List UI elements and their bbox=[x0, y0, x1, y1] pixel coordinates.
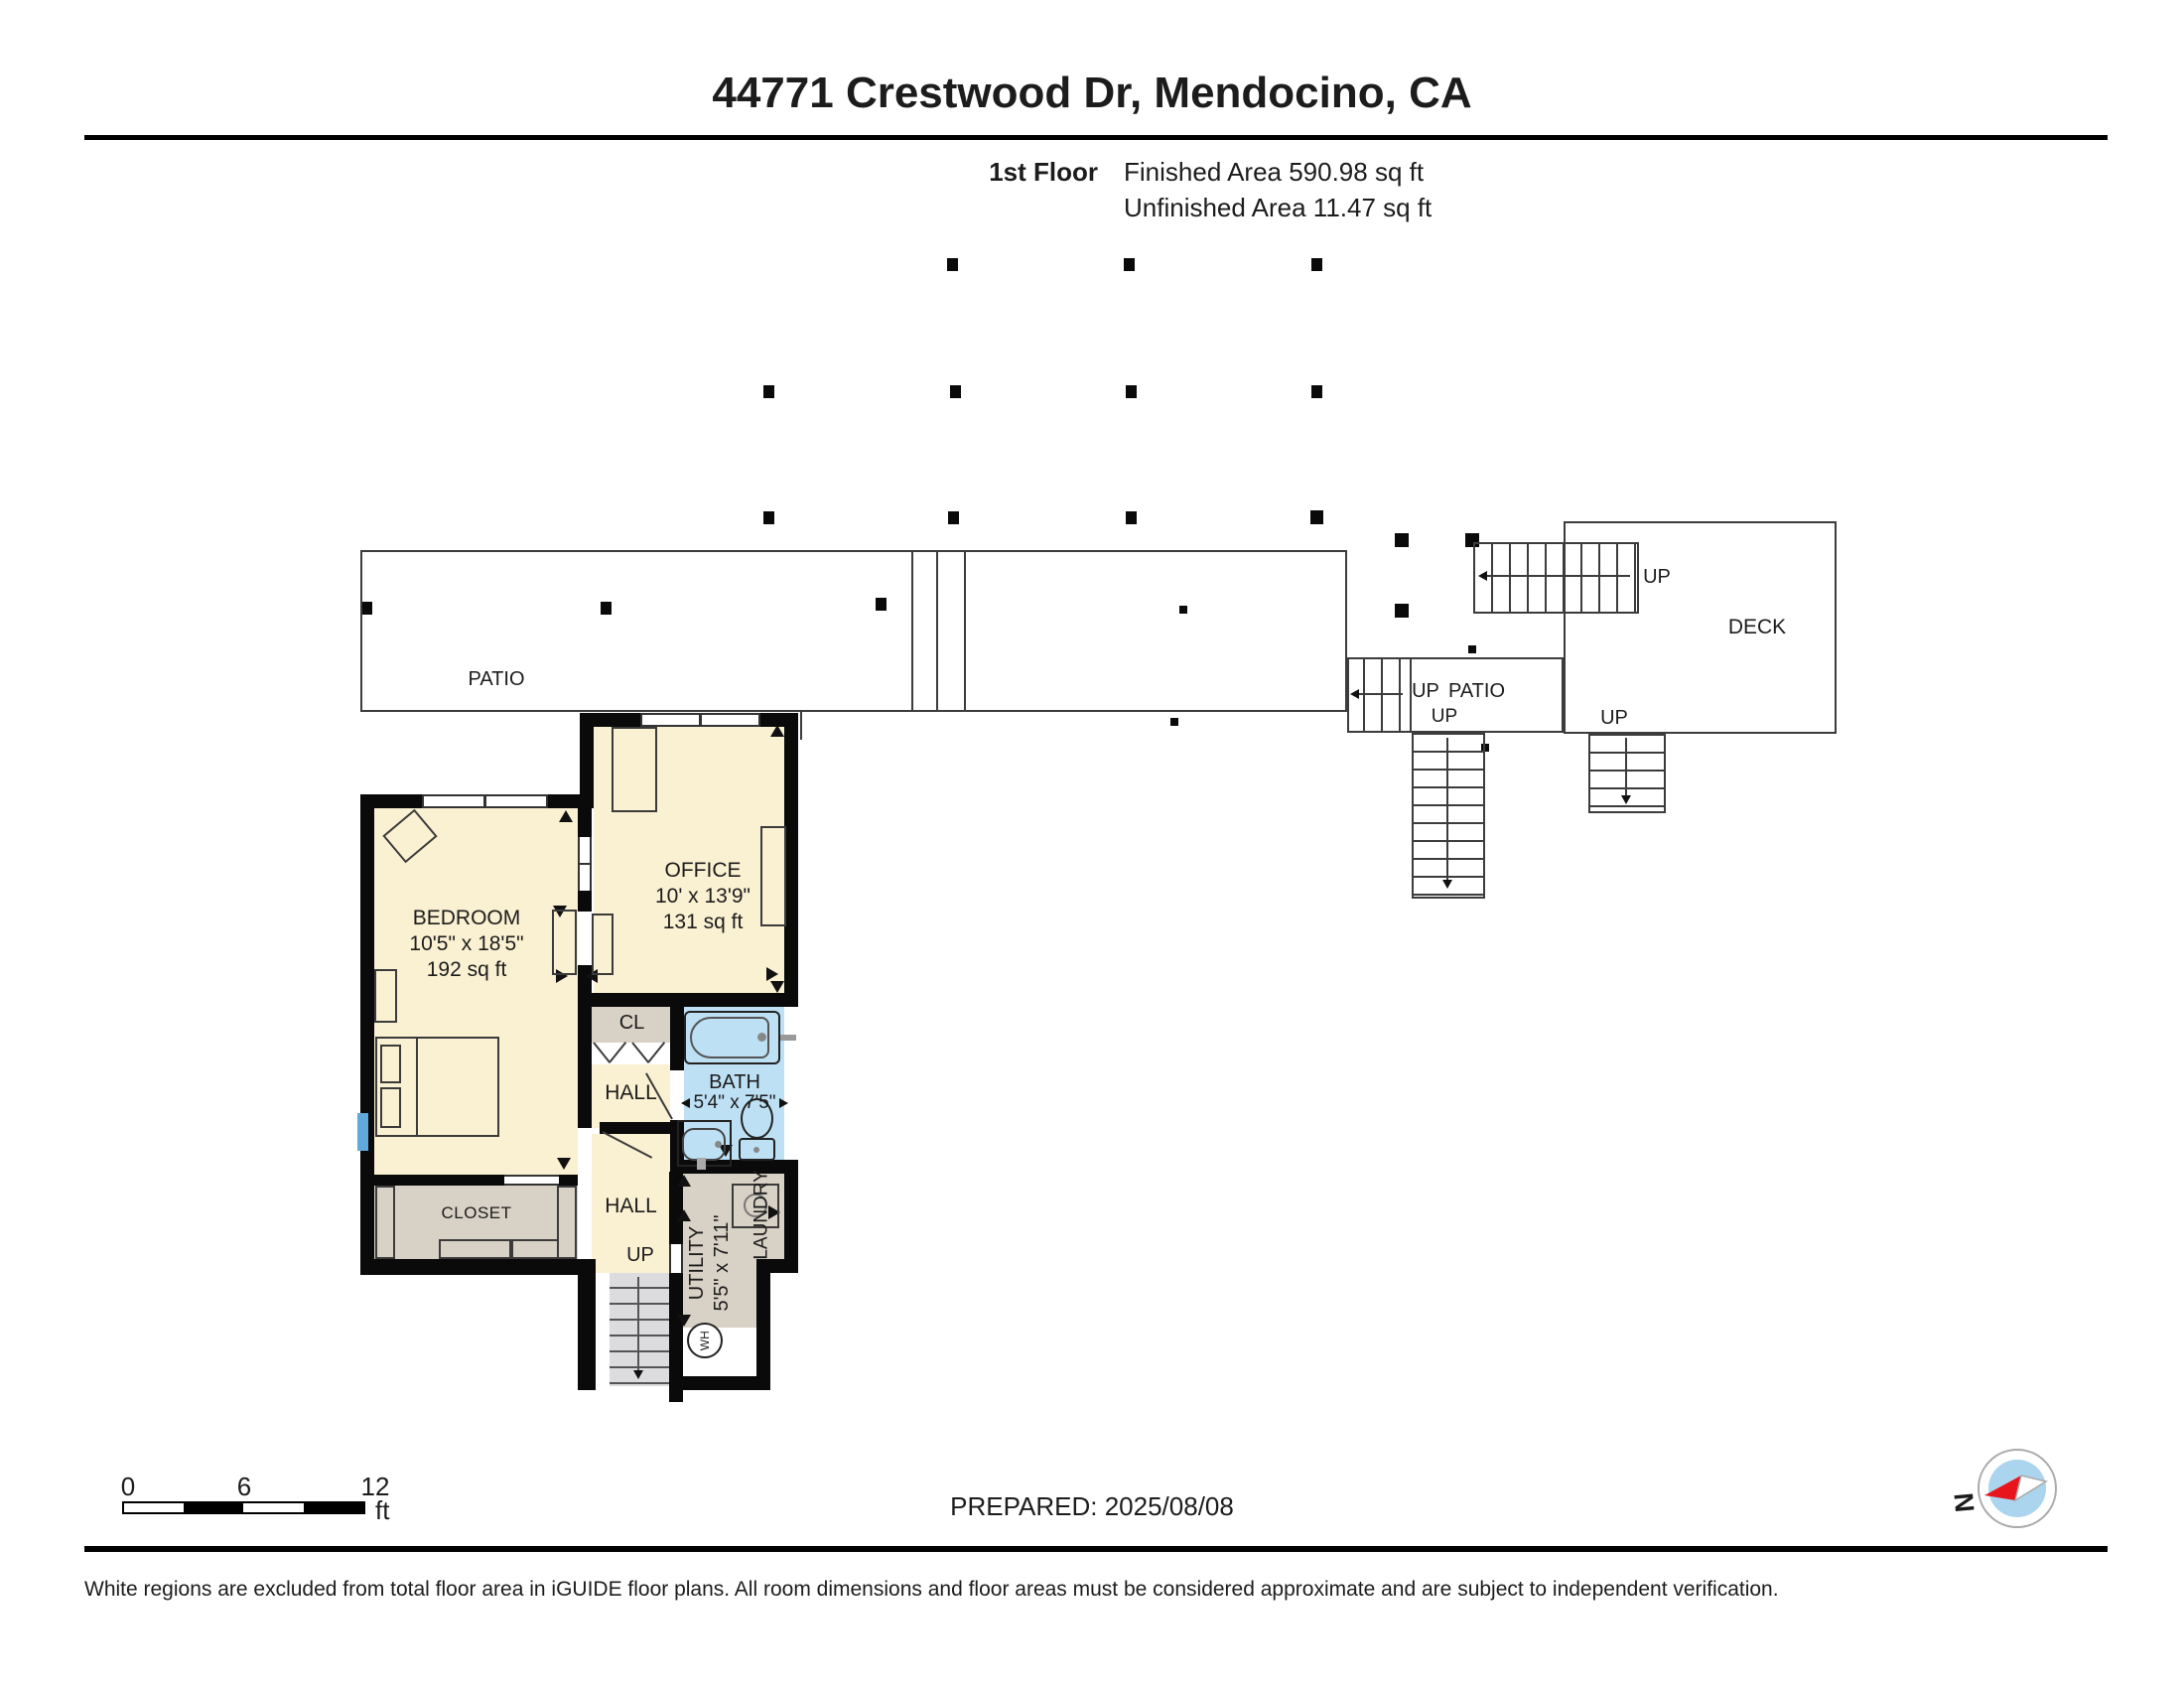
deck-label: DECK bbox=[1703, 615, 1812, 639]
prepared-date: PREPARED: 2025/08/08 bbox=[943, 1491, 1241, 1522]
post-marker bbox=[1126, 511, 1137, 524]
stairs-b-center-line bbox=[1625, 738, 1627, 795]
door-arrow-icon bbox=[766, 967, 778, 981]
floor-label: 1st Floor bbox=[854, 157, 1098, 188]
wall bbox=[670, 1007, 684, 1070]
post-marker bbox=[1311, 258, 1322, 271]
post-marker bbox=[1126, 385, 1137, 398]
window-tick bbox=[758, 713, 760, 727]
page-title: 44771 Crestwood Dr, Mendocino, CA bbox=[0, 68, 2184, 120]
stairs-a-center-line bbox=[1446, 738, 1448, 881]
post-marker bbox=[947, 258, 958, 271]
scale-bar bbox=[122, 1501, 365, 1514]
desk bbox=[612, 727, 657, 812]
header-divider bbox=[84, 135, 2108, 140]
bath-label: BATH bbox=[683, 1070, 786, 1094]
bifold-door bbox=[593, 1042, 611, 1062]
closet-shelf bbox=[375, 1186, 395, 1259]
room-area: 131 sq ft bbox=[604, 910, 802, 935]
post-marker bbox=[1395, 533, 1409, 547]
deck-stairs bbox=[1473, 542, 1639, 614]
closet-window bbox=[504, 1175, 559, 1186]
bifold-door bbox=[631, 1042, 649, 1062]
hall-lower-label: HALL bbox=[592, 1194, 670, 1218]
wall-stub-line bbox=[800, 712, 802, 740]
window-tick bbox=[546, 794, 548, 808]
arrow-down-icon bbox=[633, 1370, 643, 1379]
window-tick bbox=[422, 794, 424, 808]
compass-north-label: N bbox=[1948, 1486, 1982, 1519]
patio-divider-line bbox=[911, 552, 913, 710]
wall bbox=[669, 1376, 770, 1390]
wall bbox=[578, 993, 798, 1007]
deck-stairs-arrow-line bbox=[1485, 575, 1630, 577]
door-arrow-icon bbox=[557, 1158, 571, 1170]
dim-arrow-right-icon bbox=[779, 1098, 788, 1108]
closet-shelf bbox=[511, 1239, 559, 1259]
door-arrow-icon bbox=[770, 981, 784, 993]
bedroom-label: BEDROOM 10'5" x 18'5" 192 sq ft bbox=[367, 906, 566, 983]
cl-label: CL bbox=[592, 1011, 672, 1035]
room-dims: 10' x 13'9" bbox=[604, 884, 802, 910]
window-tick bbox=[699, 713, 702, 727]
hall-upper-label: HALL bbox=[592, 1080, 670, 1105]
tub-faucet bbox=[757, 1033, 766, 1042]
post-marker bbox=[950, 385, 961, 398]
stairs-up-label: UP bbox=[615, 1243, 665, 1267]
scale-unit: ft bbox=[375, 1495, 419, 1526]
post-marker bbox=[1170, 718, 1178, 726]
patio-label: PATIO bbox=[447, 667, 546, 691]
office-label: OFFICE 10' x 13'9" 131 sq ft bbox=[604, 858, 802, 935]
footer-divider bbox=[84, 1546, 2108, 1552]
wall bbox=[784, 1160, 798, 1273]
post-marker bbox=[948, 511, 959, 524]
room-name: BEDROOM bbox=[367, 906, 566, 931]
arrow-down-icon bbox=[1442, 880, 1452, 889]
deck-down-up-label: UP bbox=[1586, 706, 1642, 730]
tub-handle bbox=[780, 1035, 796, 1041]
post-marker bbox=[1124, 258, 1135, 271]
arrow-left-icon bbox=[1478, 571, 1487, 581]
door-arrow-icon bbox=[559, 810, 573, 822]
patio-divider-line bbox=[936, 552, 938, 710]
arrow-down-icon bbox=[1621, 795, 1631, 804]
wall bbox=[360, 794, 374, 1275]
window-tick bbox=[483, 794, 486, 808]
utility-label: UTILITY 5'5" x 7'11" bbox=[685, 1164, 737, 1362]
wall bbox=[360, 1259, 596, 1275]
bed-line bbox=[416, 1037, 418, 1137]
bifold-door bbox=[609, 1042, 626, 1062]
wall bbox=[669, 1172, 683, 1402]
scale-tick-6: 6 bbox=[229, 1472, 259, 1502]
post-marker bbox=[1311, 385, 1322, 398]
pillow bbox=[380, 1045, 401, 1083]
bath-dims: 5'4" x 7'5" bbox=[693, 1092, 775, 1115]
utility-window bbox=[669, 1244, 683, 1273]
scale-tick-0: 0 bbox=[113, 1472, 143, 1502]
wall bbox=[578, 1001, 592, 1128]
unfinished-area: Unfinished Area 11.47 sq ft bbox=[1124, 193, 1640, 223]
room-dims: 5'5" x 7'11" bbox=[710, 1164, 735, 1362]
deck-stairs-up-label: UP bbox=[1632, 565, 1682, 589]
laundry-label: LAUNDRY bbox=[751, 1135, 774, 1294]
below-grade-window bbox=[357, 1113, 368, 1151]
interior-stairs bbox=[610, 1273, 669, 1386]
finished-area: Finished Area 590.98 sq ft bbox=[1124, 157, 1640, 188]
arrow-left-icon bbox=[1350, 689, 1359, 699]
window-tick bbox=[640, 713, 642, 727]
window-tick bbox=[578, 863, 592, 865]
interior-stairs-center-line bbox=[637, 1277, 639, 1370]
post-marker bbox=[763, 511, 774, 524]
room-area: 192 sq ft bbox=[367, 957, 566, 983]
post-marker bbox=[1468, 645, 1476, 653]
closet-shelf bbox=[439, 1239, 511, 1259]
bifold-door bbox=[647, 1042, 665, 1062]
room-name: UTILITY bbox=[685, 1164, 710, 1362]
patio2-down-up-label: UP bbox=[1422, 706, 1467, 729]
patio2-label: PATIO bbox=[1439, 679, 1514, 703]
exterior-stairs-a bbox=[1412, 733, 1485, 899]
closet-shelf bbox=[557, 1186, 577, 1259]
room-name: OFFICE bbox=[604, 858, 802, 884]
footer-disclaimer: White regions are excluded from total fl… bbox=[84, 1577, 2129, 1602]
door-arrow-icon bbox=[770, 725, 784, 737]
patio-divider-line bbox=[964, 552, 966, 710]
bath-dims-row: 5'4" x 7'5" bbox=[673, 1092, 796, 1115]
post-marker bbox=[1395, 604, 1409, 618]
patio2-stairs-arrow-line bbox=[1356, 693, 1403, 695]
wall bbox=[600, 1122, 670, 1134]
room-dims: 10'5" x 18'5" bbox=[367, 931, 566, 957]
post-marker bbox=[763, 385, 774, 398]
compass-needle-icon bbox=[1976, 1465, 2059, 1512]
post-marker bbox=[1310, 510, 1323, 524]
dim-arrow-left-icon bbox=[681, 1098, 690, 1108]
closet-label: CLOSET bbox=[397, 1203, 556, 1223]
pillow bbox=[380, 1087, 401, 1128]
wall bbox=[578, 1259, 596, 1390]
sink-faucet bbox=[715, 1141, 722, 1148]
floorplan-page: 44771 Crestwood Dr, Mendocino, CA 1st Fl… bbox=[0, 0, 2184, 1688]
